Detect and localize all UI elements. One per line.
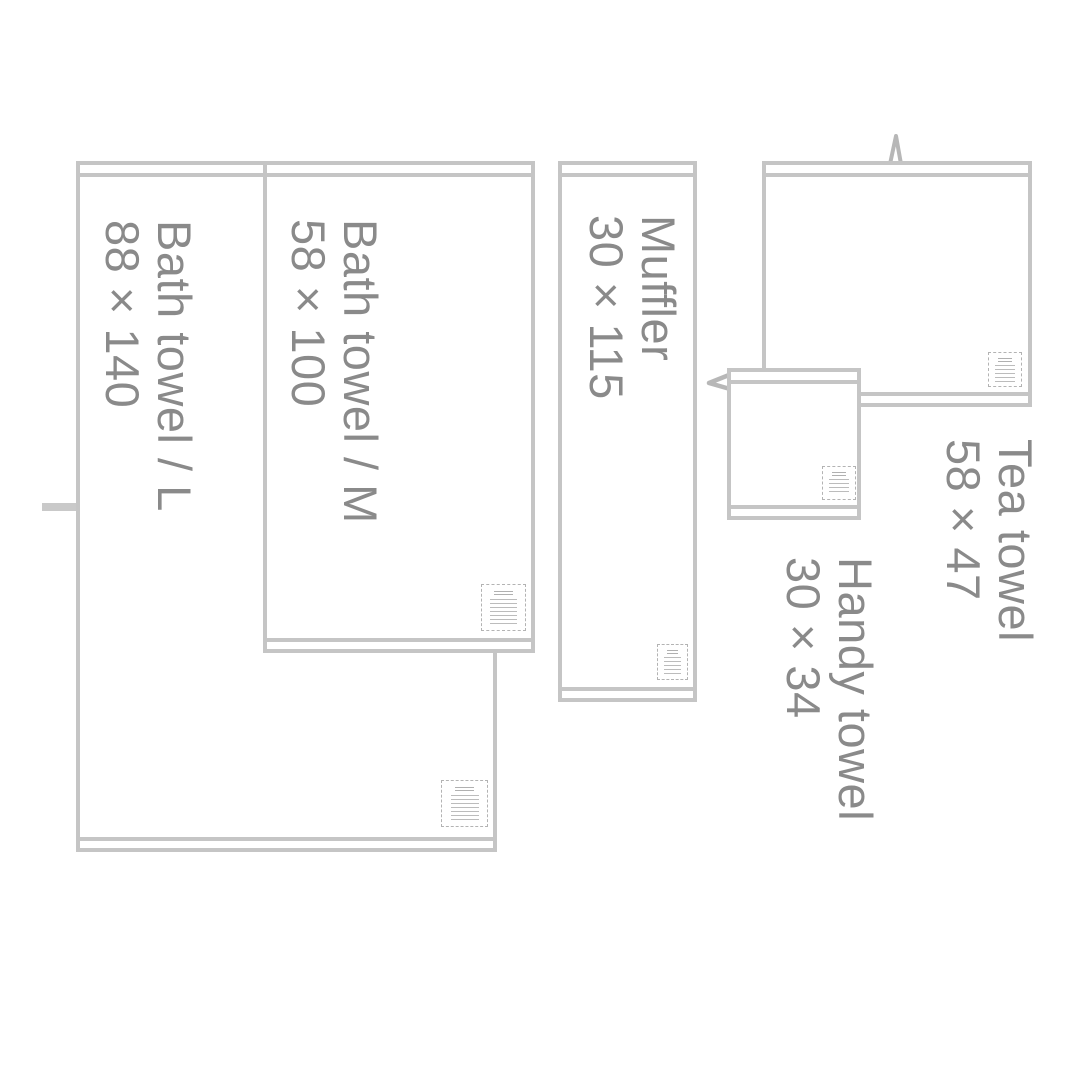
hem-stitch-line [267,173,531,177]
care-label-text-lines [490,599,516,625]
label-muffler: Muffler 30 × 115 [580,215,684,400]
product-name: Tea towel [989,439,1041,642]
care-label-title-lines [494,591,512,596]
hem-stitch-line [731,380,857,384]
care-label-text-lines [995,365,1014,382]
product-size: 58 × 47 [937,439,989,642]
care-label-tag [481,584,526,631]
product-size: 88 × 140 [96,220,148,512]
product-name: Muffler [632,215,684,400]
care-label-tag [657,644,688,680]
hem-stitch-line [562,173,693,177]
label-tea-towel: Tea towel 58 × 47 [937,439,1041,642]
label-bath-towel-l: Bath towel / L 88 × 140 [96,220,200,512]
product-name: Bath towel / M [334,219,386,524]
care-label-title-lines [832,472,845,477]
care-label-title-lines [998,358,1011,363]
care-label-text-lines [664,657,681,675]
towel-size-diagram: Bath towel / L 88 × 140 Bath towel / M 5… [0,0,1080,1080]
hem-stitch-line [731,505,857,509]
care-label-text-lines [451,795,479,821]
hem-stitch-line [562,687,693,691]
label-bath-towel-m: Bath towel / M 58 × 100 [282,219,386,524]
care-label-text-lines [829,479,848,495]
care-label-title-lines [667,650,679,655]
hem-stitch-line [766,173,1028,177]
product-name: Bath towel / L [148,220,200,512]
care-label-tag [822,466,856,500]
product-name: Handy towel [829,557,881,821]
hem-stitch-line [267,638,531,642]
product-size: 58 × 100 [282,219,334,524]
care-label-title-lines [455,787,474,792]
care-label-tag [988,352,1022,387]
product-size: 30 × 34 [777,557,829,821]
label-handy-towel: Handy towel 30 × 34 [777,557,881,821]
hem-stitch-line [80,837,493,841]
product-size: 30 × 115 [580,215,632,400]
care-label-tag [441,780,488,827]
